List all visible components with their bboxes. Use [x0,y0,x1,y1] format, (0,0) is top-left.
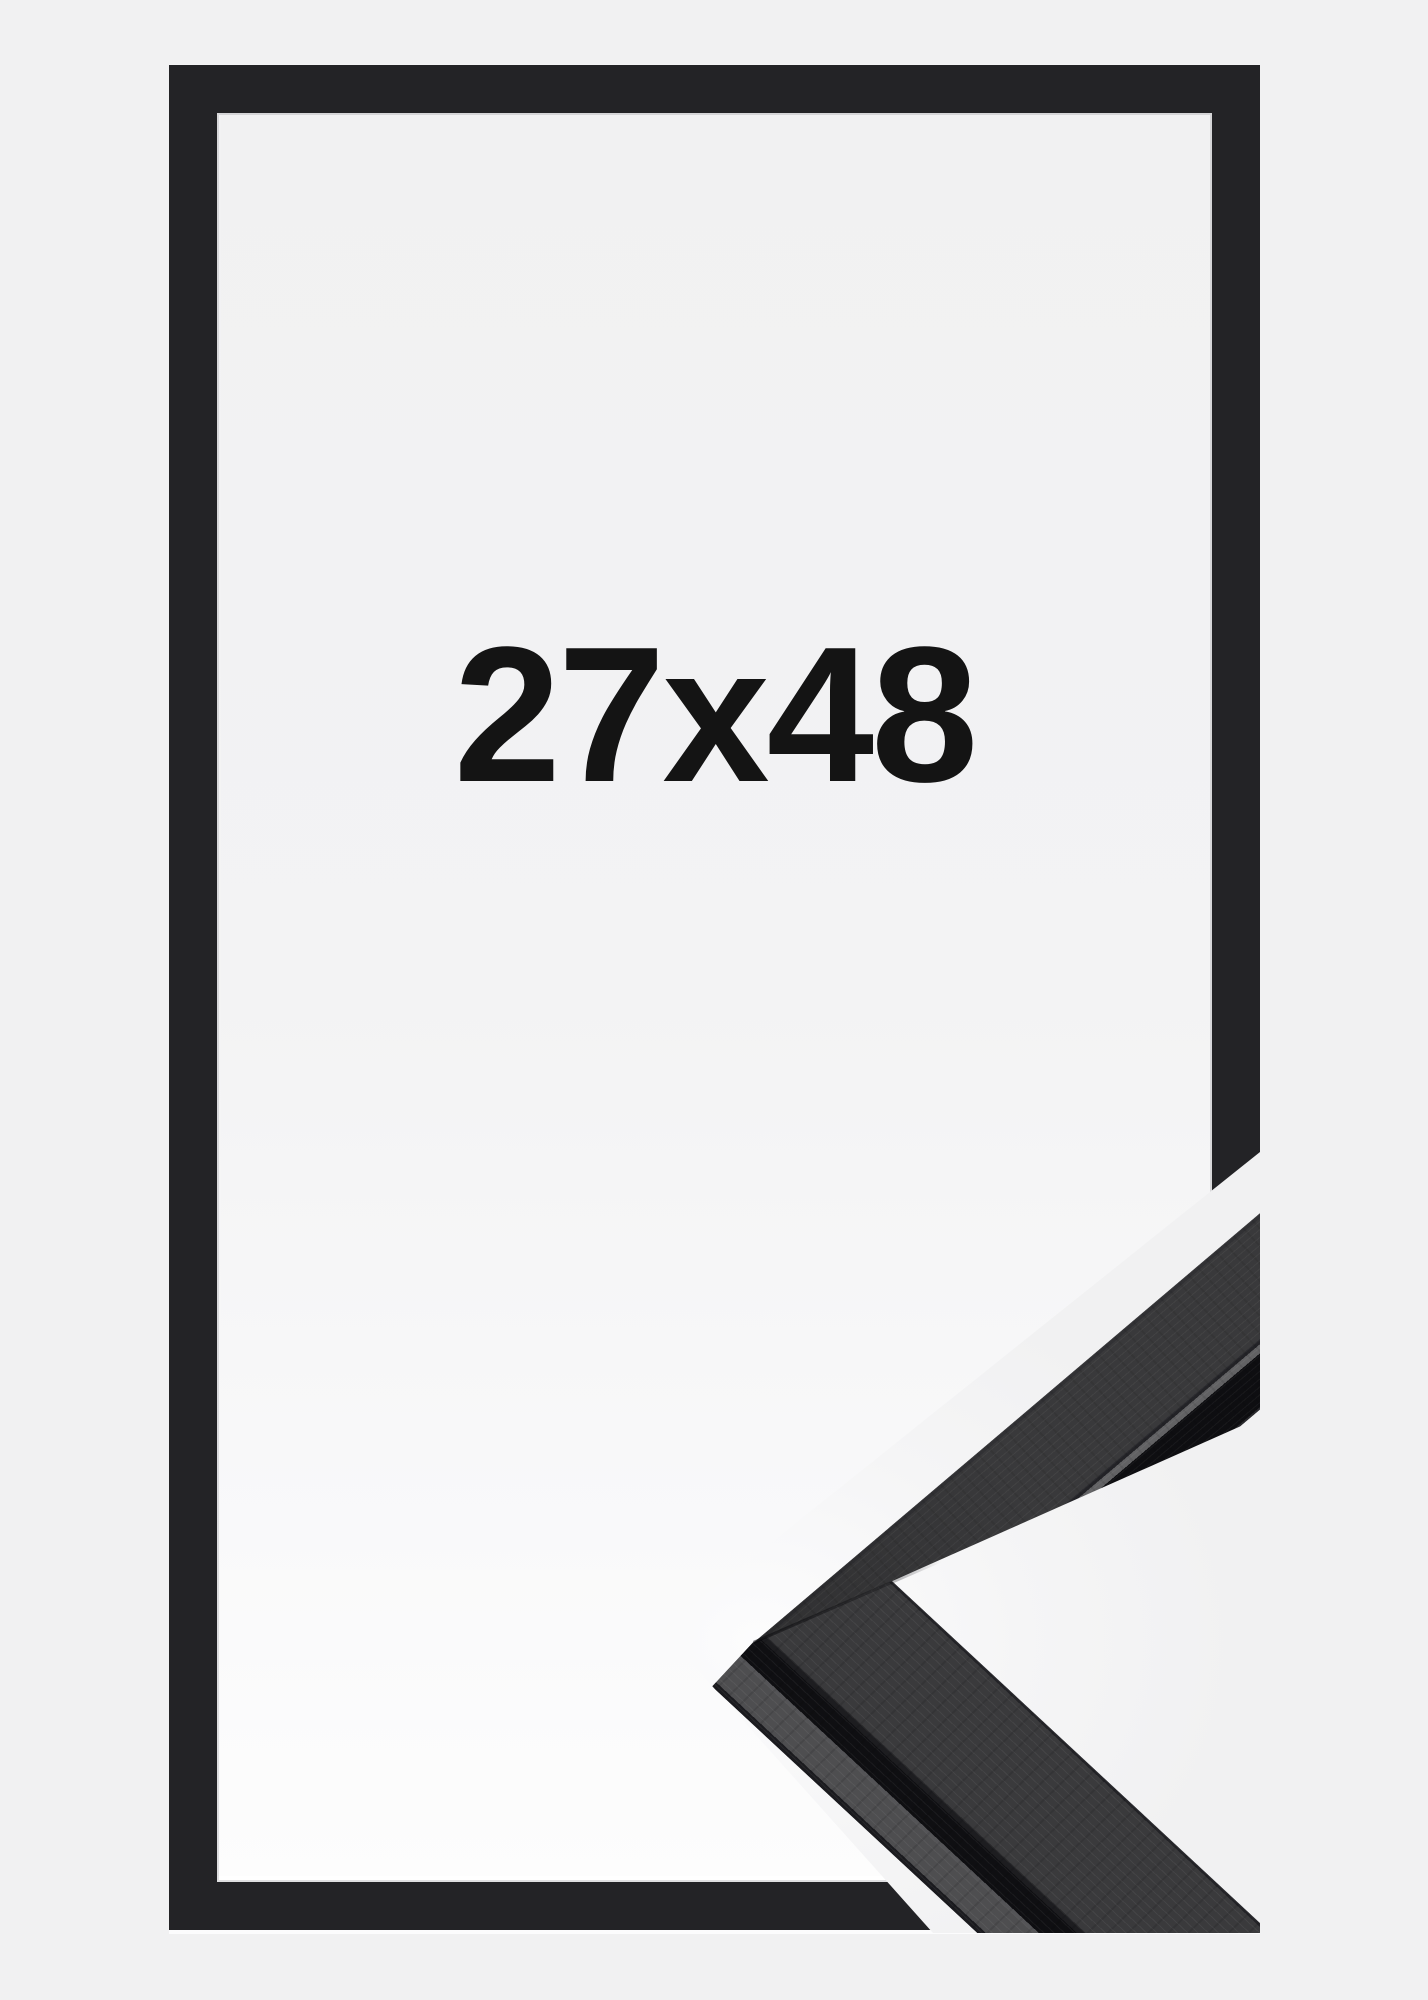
frame-interior: 27x48 [217,113,1212,1882]
picture-frame: 27x48 [169,65,1260,1930]
size-label: 27x48 [217,618,1212,811]
product-image[interactable]: 27x48 [0,0,1428,2000]
